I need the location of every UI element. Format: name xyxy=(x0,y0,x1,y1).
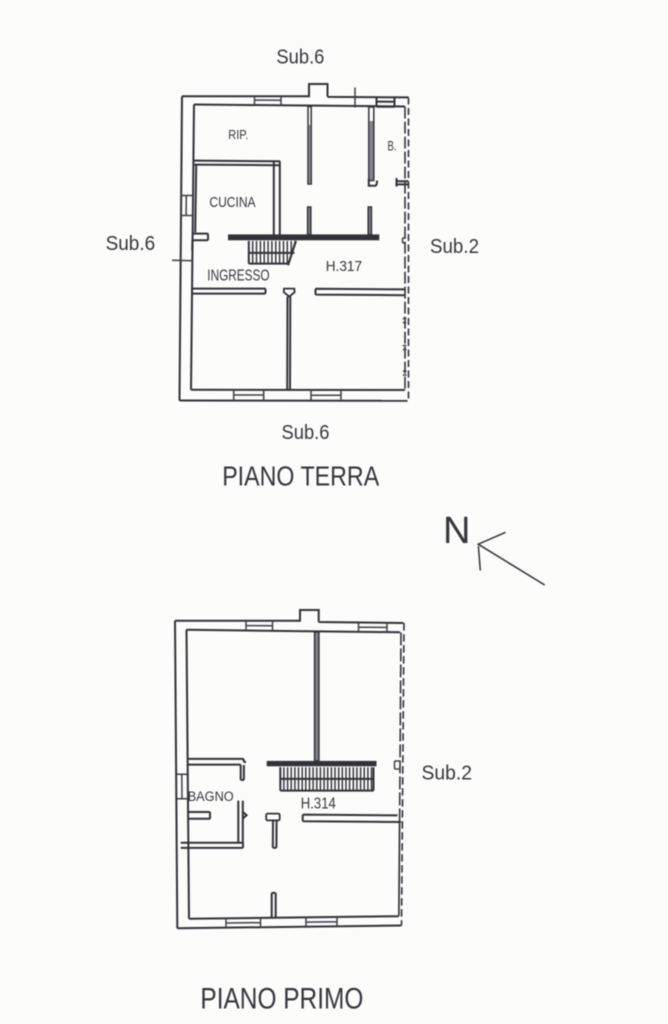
svg-text:Sub.2: Sub.2 xyxy=(422,761,473,784)
svg-text:PIANO TERRA: PIANO TERRA xyxy=(222,461,379,492)
svg-text:Sub.2: Sub.2 xyxy=(430,235,479,258)
svg-text:INGRESSO: INGRESSO xyxy=(207,268,269,285)
svg-text:RIP.: RIP. xyxy=(228,127,248,142)
svg-text:PIANO PRIMO: PIANO PRIMO xyxy=(200,982,363,1015)
svg-text:Sub.6: Sub.6 xyxy=(282,422,330,444)
svg-text:Sub.6: Sub.6 xyxy=(106,232,156,255)
svg-text:BAGNO: BAGNO xyxy=(188,789,234,804)
svg-text:Sub.6: Sub.6 xyxy=(276,45,324,68)
svg-text:CUCINA: CUCINA xyxy=(209,194,255,211)
svg-text:H.314: H.314 xyxy=(301,795,336,812)
svg-text:B.: B. xyxy=(388,138,397,153)
svg-text:N: N xyxy=(443,510,470,552)
svg-text:H.317: H.317 xyxy=(326,258,362,275)
